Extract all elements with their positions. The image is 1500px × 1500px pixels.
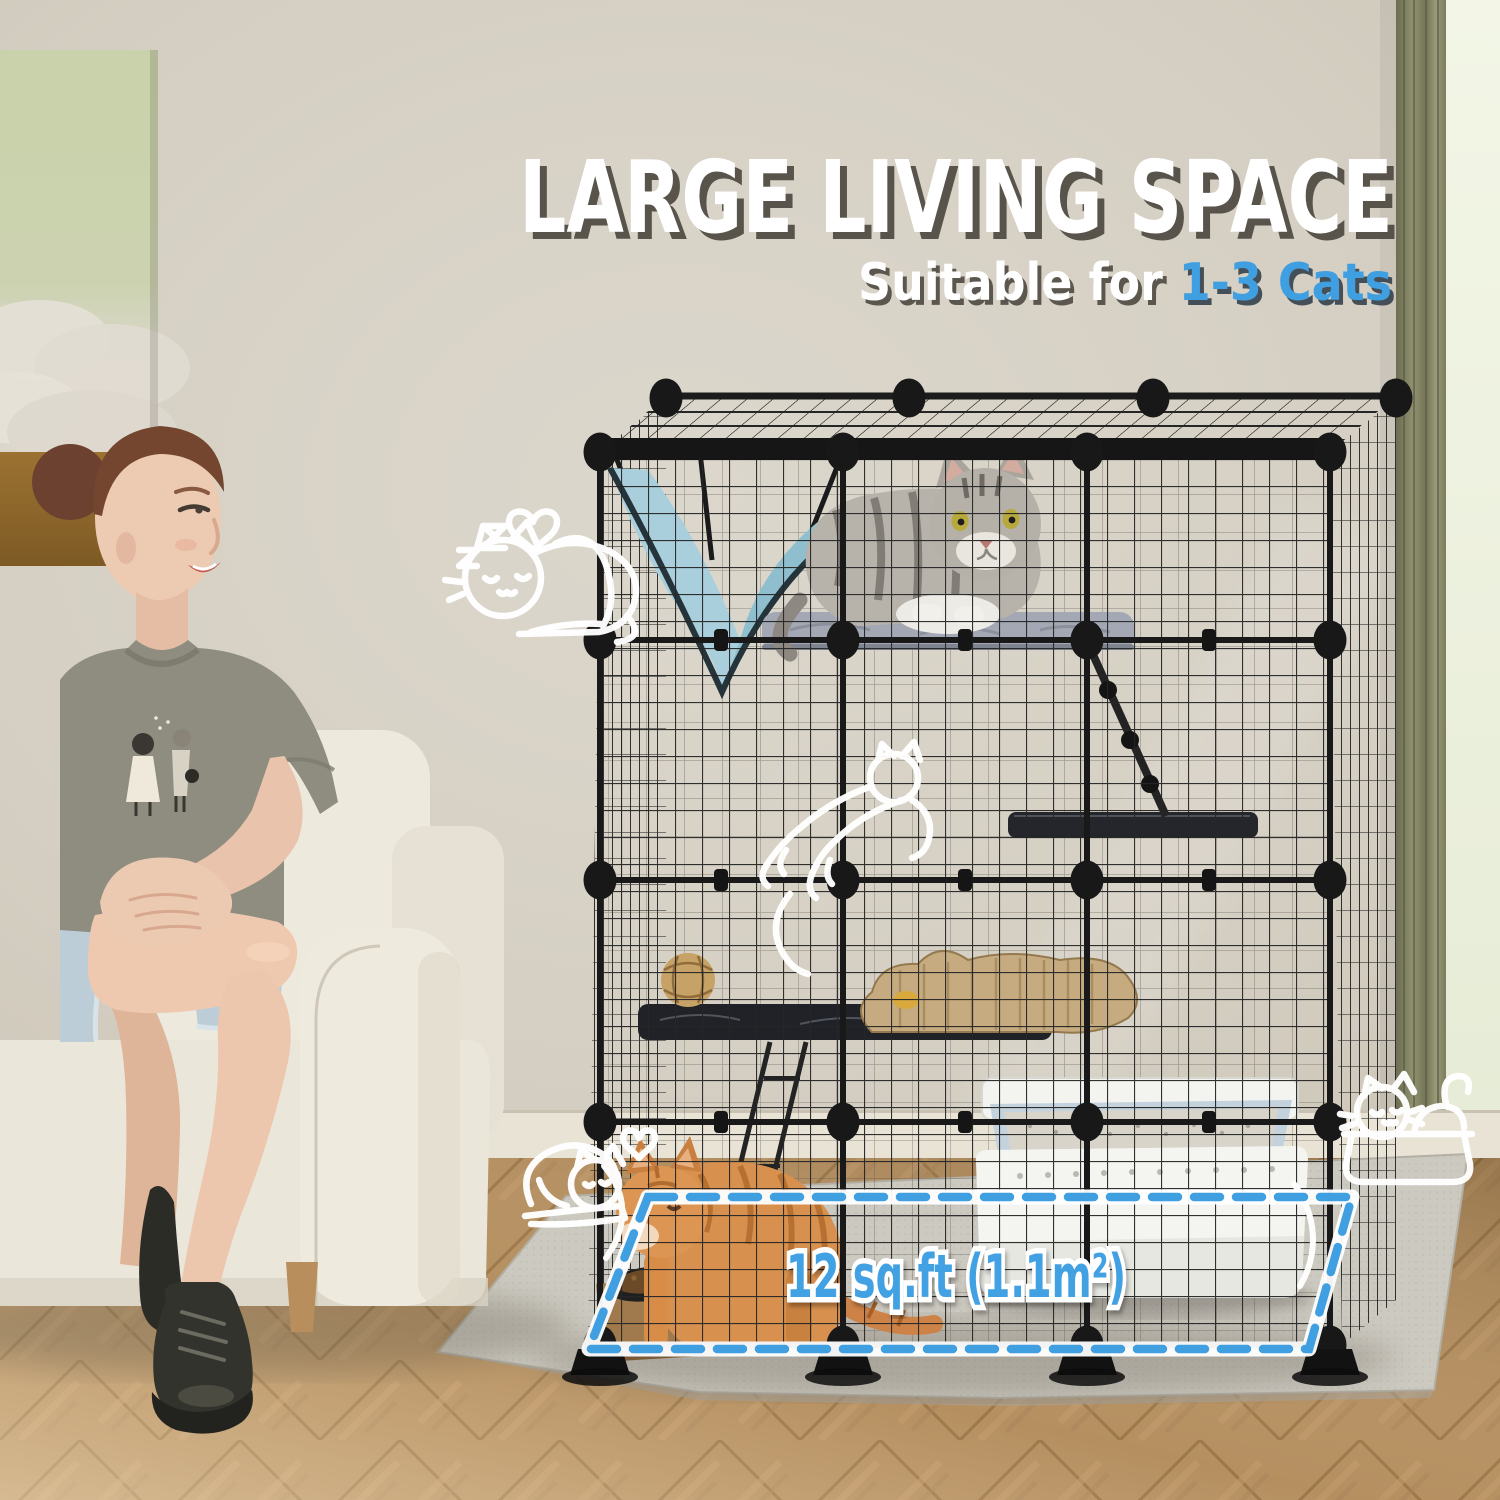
cage-top-bar: [592, 438, 1338, 460]
subtitle-prefix: Suitable for: [858, 253, 1179, 313]
subtitle-highlight: 1-3 Cats: [1179, 253, 1392, 313]
cat-cage: [562, 379, 1420, 1387]
scene-canvas: 12 sq.ft (1.1m²) LARGE LIVING SPACE LARG…: [0, 0, 1500, 1500]
front-shoe: [152, 1282, 253, 1434]
floor-area-label: 12 sq.ft (1.1m²): [786, 1242, 1126, 1312]
product-marketing-image: 12 sq.ft (1.1m²) LARGE LIVING SPACE LARG…: [0, 0, 1500, 1500]
couch-leg: [286, 1262, 318, 1332]
page-title: LARGE LIVING SPACE: [519, 139, 1393, 256]
subtitle: Suitable for 1-3 Cats: [858, 253, 1392, 313]
cage-front-mesh: [600, 452, 1330, 1345]
